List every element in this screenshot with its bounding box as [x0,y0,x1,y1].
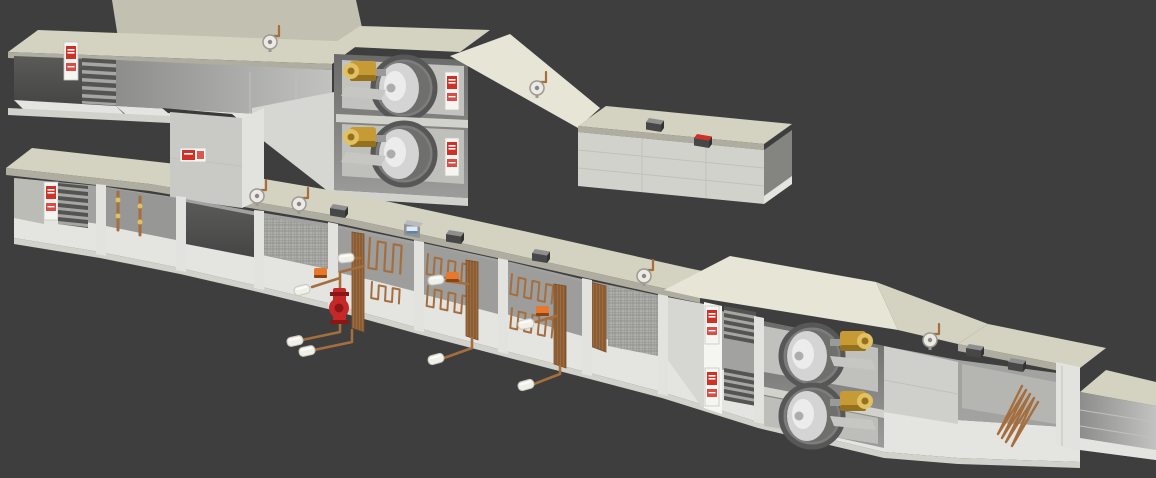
warning-label [44,182,58,220]
render-canvas [0,0,1156,478]
end-wall [14,178,44,224]
pipe-cap [338,253,355,264]
coil-header [554,284,566,368]
duct-sensor [646,118,664,132]
duct-sensor-red [694,134,712,148]
warning-label [64,42,78,80]
warning-label [445,72,459,110]
valve-actuator [446,272,459,282]
valve-actuator [536,306,549,316]
duct-sensor [1008,358,1026,372]
pipe-cap [427,274,444,285]
duct-sensor [532,249,550,263]
valve-actuator [314,268,327,278]
coil-header [352,232,364,332]
warning-label [705,368,719,406]
end-frame [1056,362,1080,452]
warning-label [705,306,719,344]
duct-sensor [330,204,348,218]
warning-label [445,138,459,176]
coil-header [466,260,478,340]
outlet-duct [1080,370,1156,460]
duct-sensor [966,344,984,358]
duct-sensor [446,230,464,244]
warning-label [180,148,206,162]
